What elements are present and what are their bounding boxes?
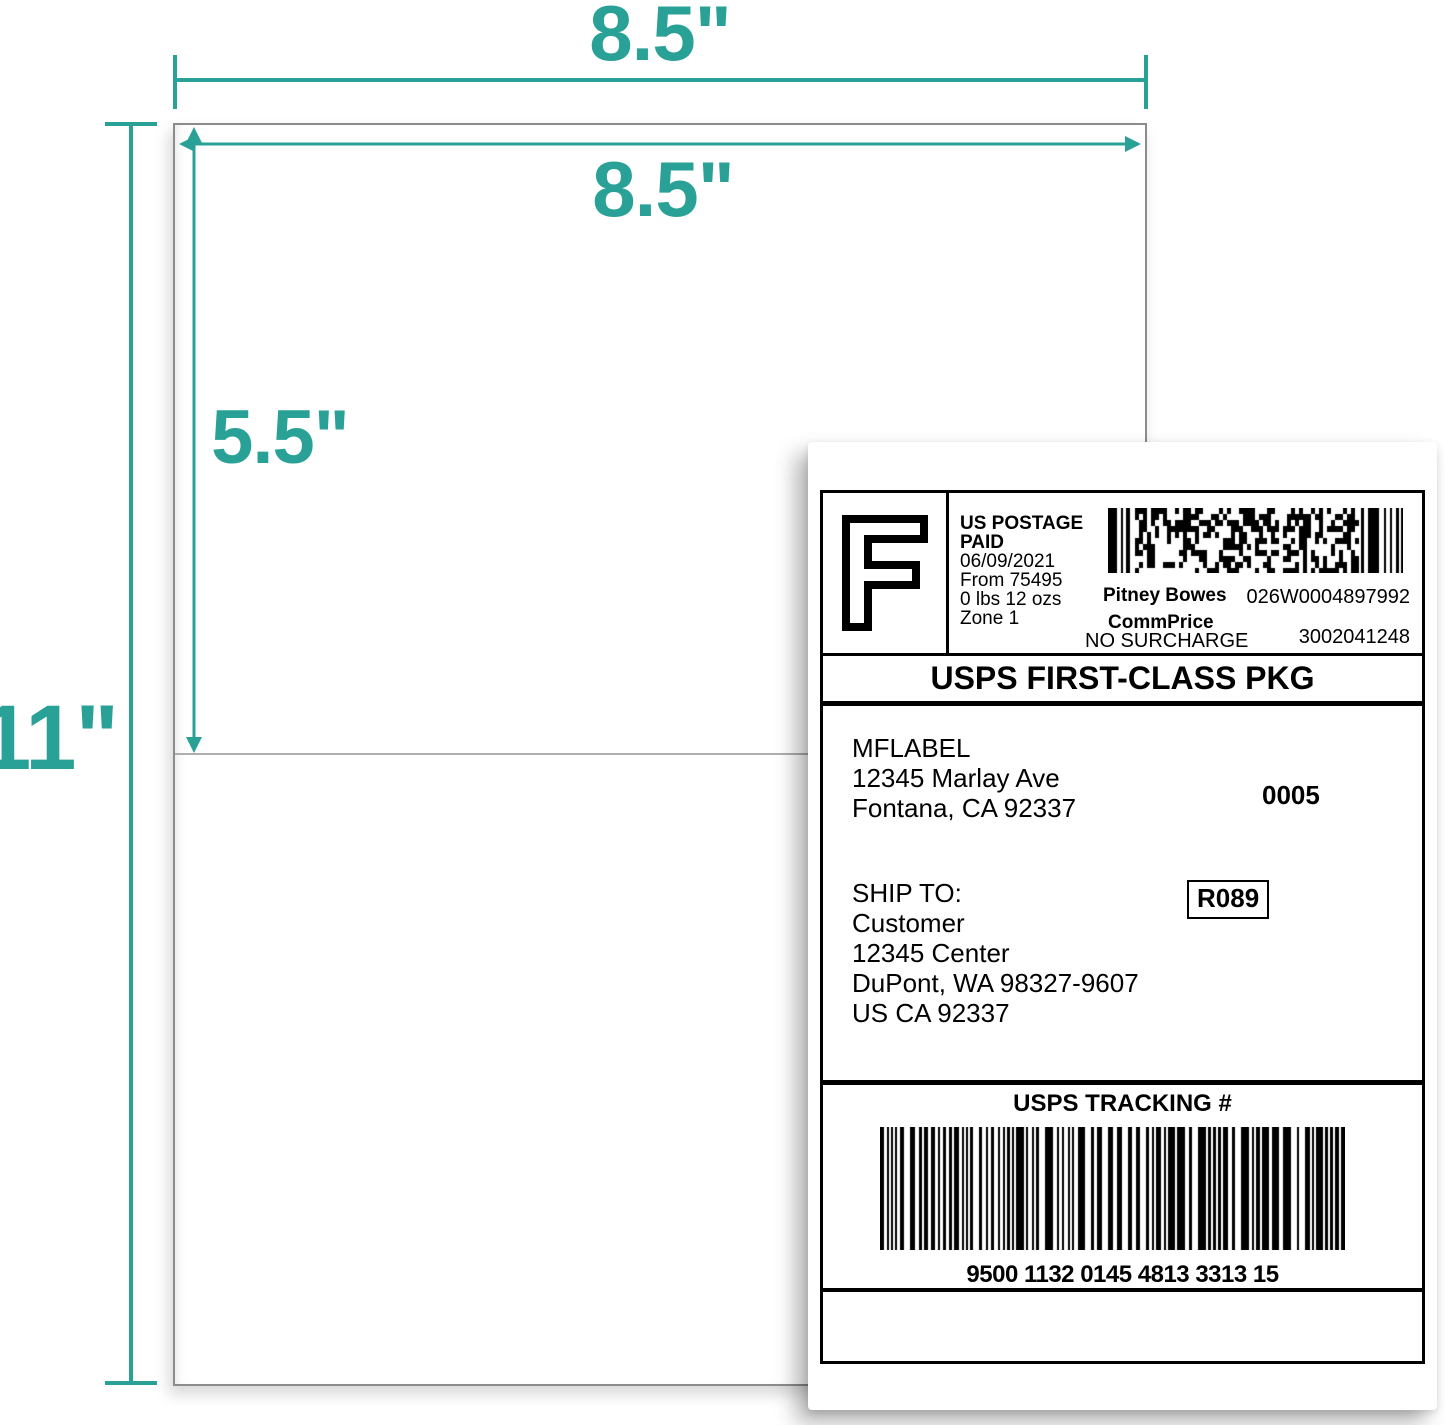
label-height-label: 5.5" bbox=[180, 400, 380, 476]
recipient-street: 12345 Center bbox=[852, 938, 1139, 968]
recipient-address: SHIP TO: Customer 12345 Center DuPont, W… bbox=[852, 878, 1139, 1028]
sender-city: Fontana, CA 92337 bbox=[852, 793, 1076, 823]
postage-line: Zone 1 bbox=[960, 609, 1083, 628]
address-section: MFLABEL 12345 Marlay Ave Fontana, CA 923… bbox=[823, 706, 1422, 1085]
shipping-label: US POSTAGE PAID 06/09/2021 From 75495 0 … bbox=[820, 490, 1425, 1364]
sender-street: 12345 Marlay Ave bbox=[852, 763, 1076, 793]
recipient-country: US CA 92337 bbox=[852, 998, 1139, 1028]
postage-line: From 75495 bbox=[960, 571, 1083, 590]
meter-number: 026W0004897992 bbox=[1247, 586, 1410, 609]
recipient-name: Customer bbox=[852, 908, 1139, 938]
postage-line: 0 lbs 12 ozs bbox=[960, 590, 1083, 609]
postage-line: US POSTAGE bbox=[960, 514, 1083, 533]
label-header-section: US POSTAGE PAID 06/09/2021 From 75495 0 … bbox=[823, 493, 1422, 656]
sender-address: MFLABEL 12345 Marlay Ave Fontana, CA 923… bbox=[852, 733, 1076, 823]
postage-statement: US POSTAGE PAID 06/09/2021 From 75495 0 … bbox=[960, 514, 1083, 628]
ship-to-heading: SHIP TO: bbox=[852, 878, 1139, 908]
meter-account: 3002041248 bbox=[1299, 626, 1410, 649]
shipping-label-card: US POSTAGE PAID 06/09/2021 From 75495 0 … bbox=[808, 442, 1437, 1410]
indicia-cell bbox=[823, 493, 949, 653]
batch-number: 0005 bbox=[1262, 780, 1320, 811]
sender-name: MFLABEL bbox=[852, 733, 1076, 763]
label-footer-blank bbox=[823, 1292, 1422, 1359]
sheet-height-label: 11" bbox=[0, 692, 118, 784]
tracking-number: 9500 1132 0145 4813 3313 15 bbox=[823, 1261, 1422, 1289]
postage-line: 06/09/2021 bbox=[960, 552, 1083, 571]
recipient-city: DuPont, WA 98327-9607 bbox=[852, 968, 1139, 998]
service-banner: USPS FIRST-CLASS PKG bbox=[823, 656, 1422, 706]
tracking-section: USPS TRACKING # 9500 1132 0145 4813 3313… bbox=[823, 1085, 1422, 1292]
postage-2d-barcode bbox=[1108, 508, 1403, 573]
tracking-heading: USPS TRACKING # bbox=[823, 1090, 1422, 1118]
sheet-width-label: 8.5" bbox=[510, 0, 810, 72]
meter-surcharge: NO SURCHARGE bbox=[1085, 630, 1248, 653]
label-width-label: 8.5" bbox=[513, 150, 813, 228]
postage-line: PAID bbox=[960, 533, 1083, 552]
meter-vendor: Pitney Bowes bbox=[1103, 585, 1227, 607]
route-code-box: R089 bbox=[1187, 880, 1269, 919]
postage-info-cell: US POSTAGE PAID 06/09/2021 From 75495 0 … bbox=[949, 493, 1422, 653]
tracking-barcode bbox=[880, 1127, 1345, 1250]
f-indicia-icon bbox=[841, 514, 929, 632]
